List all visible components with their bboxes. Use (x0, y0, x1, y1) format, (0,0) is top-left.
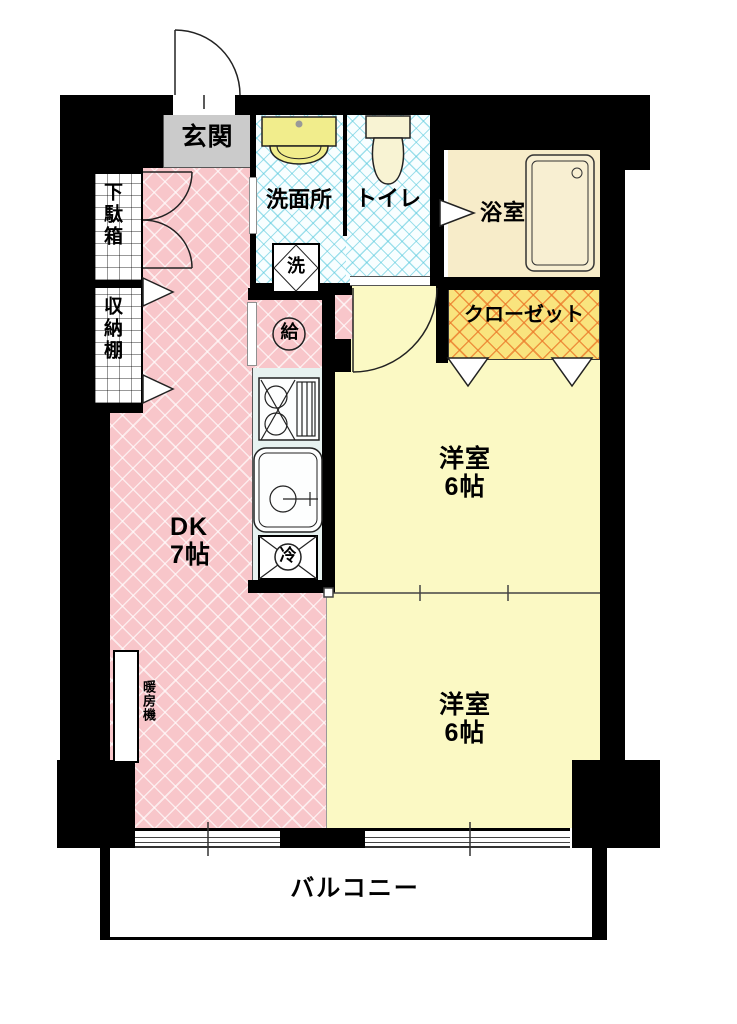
entrance-label: 玄関 (163, 124, 252, 152)
storage-shelf-door-markers (143, 278, 173, 403)
washbasin-fixture (262, 117, 336, 164)
closet-label: クローゼット (448, 304, 600, 326)
window-mullions (208, 822, 470, 856)
sink-fixture (254, 448, 322, 532)
bathroom-label: 浴室 (448, 201, 558, 225)
toilet-fixture (366, 116, 410, 184)
heater-label: 暖房機 (142, 680, 155, 722)
bedroom-partition (324, 585, 600, 601)
entrance-door-swing (175, 30, 240, 109)
dk-name: DK (170, 514, 211, 542)
washroom-label: 洗面所 (252, 188, 346, 212)
dk-size: 7帖 (170, 542, 211, 570)
bedroom-lower-label: 洋室 6帖 (420, 692, 510, 747)
water-heater-label: 給 (257, 323, 322, 343)
closet-door-markers (448, 358, 592, 386)
shoe-cabinet-label: 下駄箱 (102, 182, 121, 248)
stove-fixture (259, 378, 319, 440)
bedroom-lower-name: 洋室 (420, 692, 510, 720)
plan-linework (0, 0, 737, 1024)
bedroom-upper-name: 洋室 (420, 446, 510, 474)
bedroom-door-swing (353, 288, 437, 372)
shoe-cabinet-door-swings (143, 172, 192, 268)
bedroom-lower-size: 6帖 (420, 720, 510, 748)
bedroom-upper-label: 洋室 6帖 (420, 446, 510, 501)
refrigerator-label: 冷 (258, 547, 318, 566)
floor-plan: 玄関 PS 下駄箱 収納棚 洗面所 トイレ 浴室 クローゼット DK 7帖 洋室… (0, 0, 737, 1024)
storage-shelf-label: 収納棚 (102, 296, 121, 362)
pipe-space-label: PS (475, 104, 557, 129)
toilet-label: トイレ (346, 187, 430, 211)
balcony-label: バルコニー (255, 876, 455, 902)
washer-label: 洗 (272, 257, 320, 277)
bedroom-upper-size: 6帖 (420, 474, 510, 502)
dk-label: DK 7帖 (170, 514, 211, 569)
